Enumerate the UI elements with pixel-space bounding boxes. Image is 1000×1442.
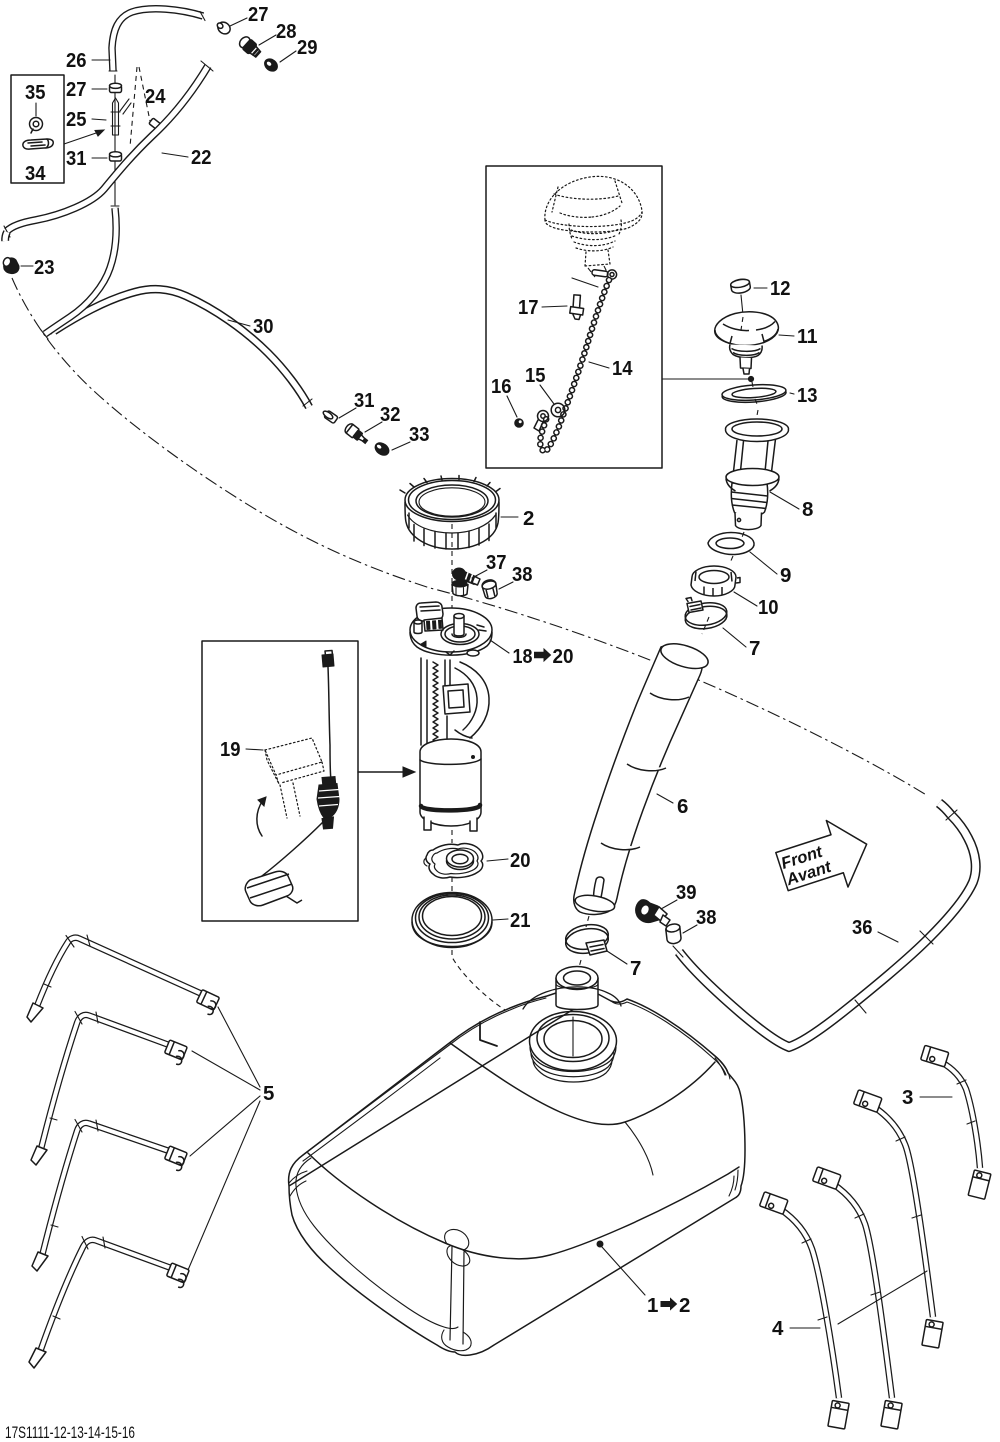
svg-text:38: 38: [696, 906, 717, 929]
svg-text:5: 5: [263, 1082, 274, 1105]
svg-text:6: 6: [677, 795, 688, 818]
svg-text:16: 16: [491, 375, 512, 398]
svg-text:28: 28: [276, 20, 297, 43]
svg-text:15: 15: [525, 364, 546, 387]
svg-text:3: 3: [902, 1086, 913, 1109]
svg-text:37: 37: [486, 551, 507, 574]
svg-text:27: 27: [66, 78, 87, 101]
svg-text:35: 35: [25, 81, 46, 104]
svg-text:11: 11: [797, 325, 818, 348]
svg-text:8: 8: [802, 498, 813, 521]
svg-text:26: 26: [66, 49, 87, 72]
svg-text:17: 17: [518, 296, 539, 319]
svg-text:19: 19: [220, 738, 241, 761]
svg-text:4: 4: [772, 1317, 784, 1340]
svg-text:7: 7: [749, 637, 760, 660]
svg-text:24: 24: [145, 85, 166, 108]
svg-text:21: 21: [510, 909, 531, 932]
svg-text:22: 22: [191, 146, 212, 169]
svg-text:25: 25: [66, 108, 87, 131]
svg-text:31: 31: [66, 147, 87, 170]
svg-text:20: 20: [553, 645, 574, 668]
svg-text:27: 27: [248, 3, 269, 26]
svg-text:17S1111-12-13-14-15-16: 17S1111-12-13-14-15-16: [5, 1424, 135, 1442]
svg-text:2: 2: [679, 1294, 690, 1317]
svg-text:13: 13: [797, 384, 818, 407]
svg-text:30: 30: [253, 315, 274, 338]
svg-text:33: 33: [409, 423, 430, 446]
svg-text:18: 18: [513, 645, 533, 668]
svg-text:23: 23: [34, 256, 55, 279]
svg-text:32: 32: [380, 403, 401, 426]
svg-text:2: 2: [523, 507, 534, 530]
svg-text:38: 38: [512, 563, 533, 586]
svg-text:14: 14: [612, 357, 633, 380]
svg-text:10: 10: [758, 596, 779, 619]
svg-text:1: 1: [647, 1294, 658, 1317]
svg-text:36: 36: [852, 916, 873, 939]
svg-text:39: 39: [676, 881, 697, 904]
svg-text:29: 29: [297, 36, 318, 59]
svg-text:31: 31: [354, 389, 375, 412]
svg-text:7: 7: [630, 957, 641, 980]
svg-text:34: 34: [25, 162, 46, 185]
svg-text:12: 12: [770, 277, 791, 300]
svg-text:9: 9: [780, 564, 791, 587]
svg-text:20: 20: [510, 849, 531, 872]
